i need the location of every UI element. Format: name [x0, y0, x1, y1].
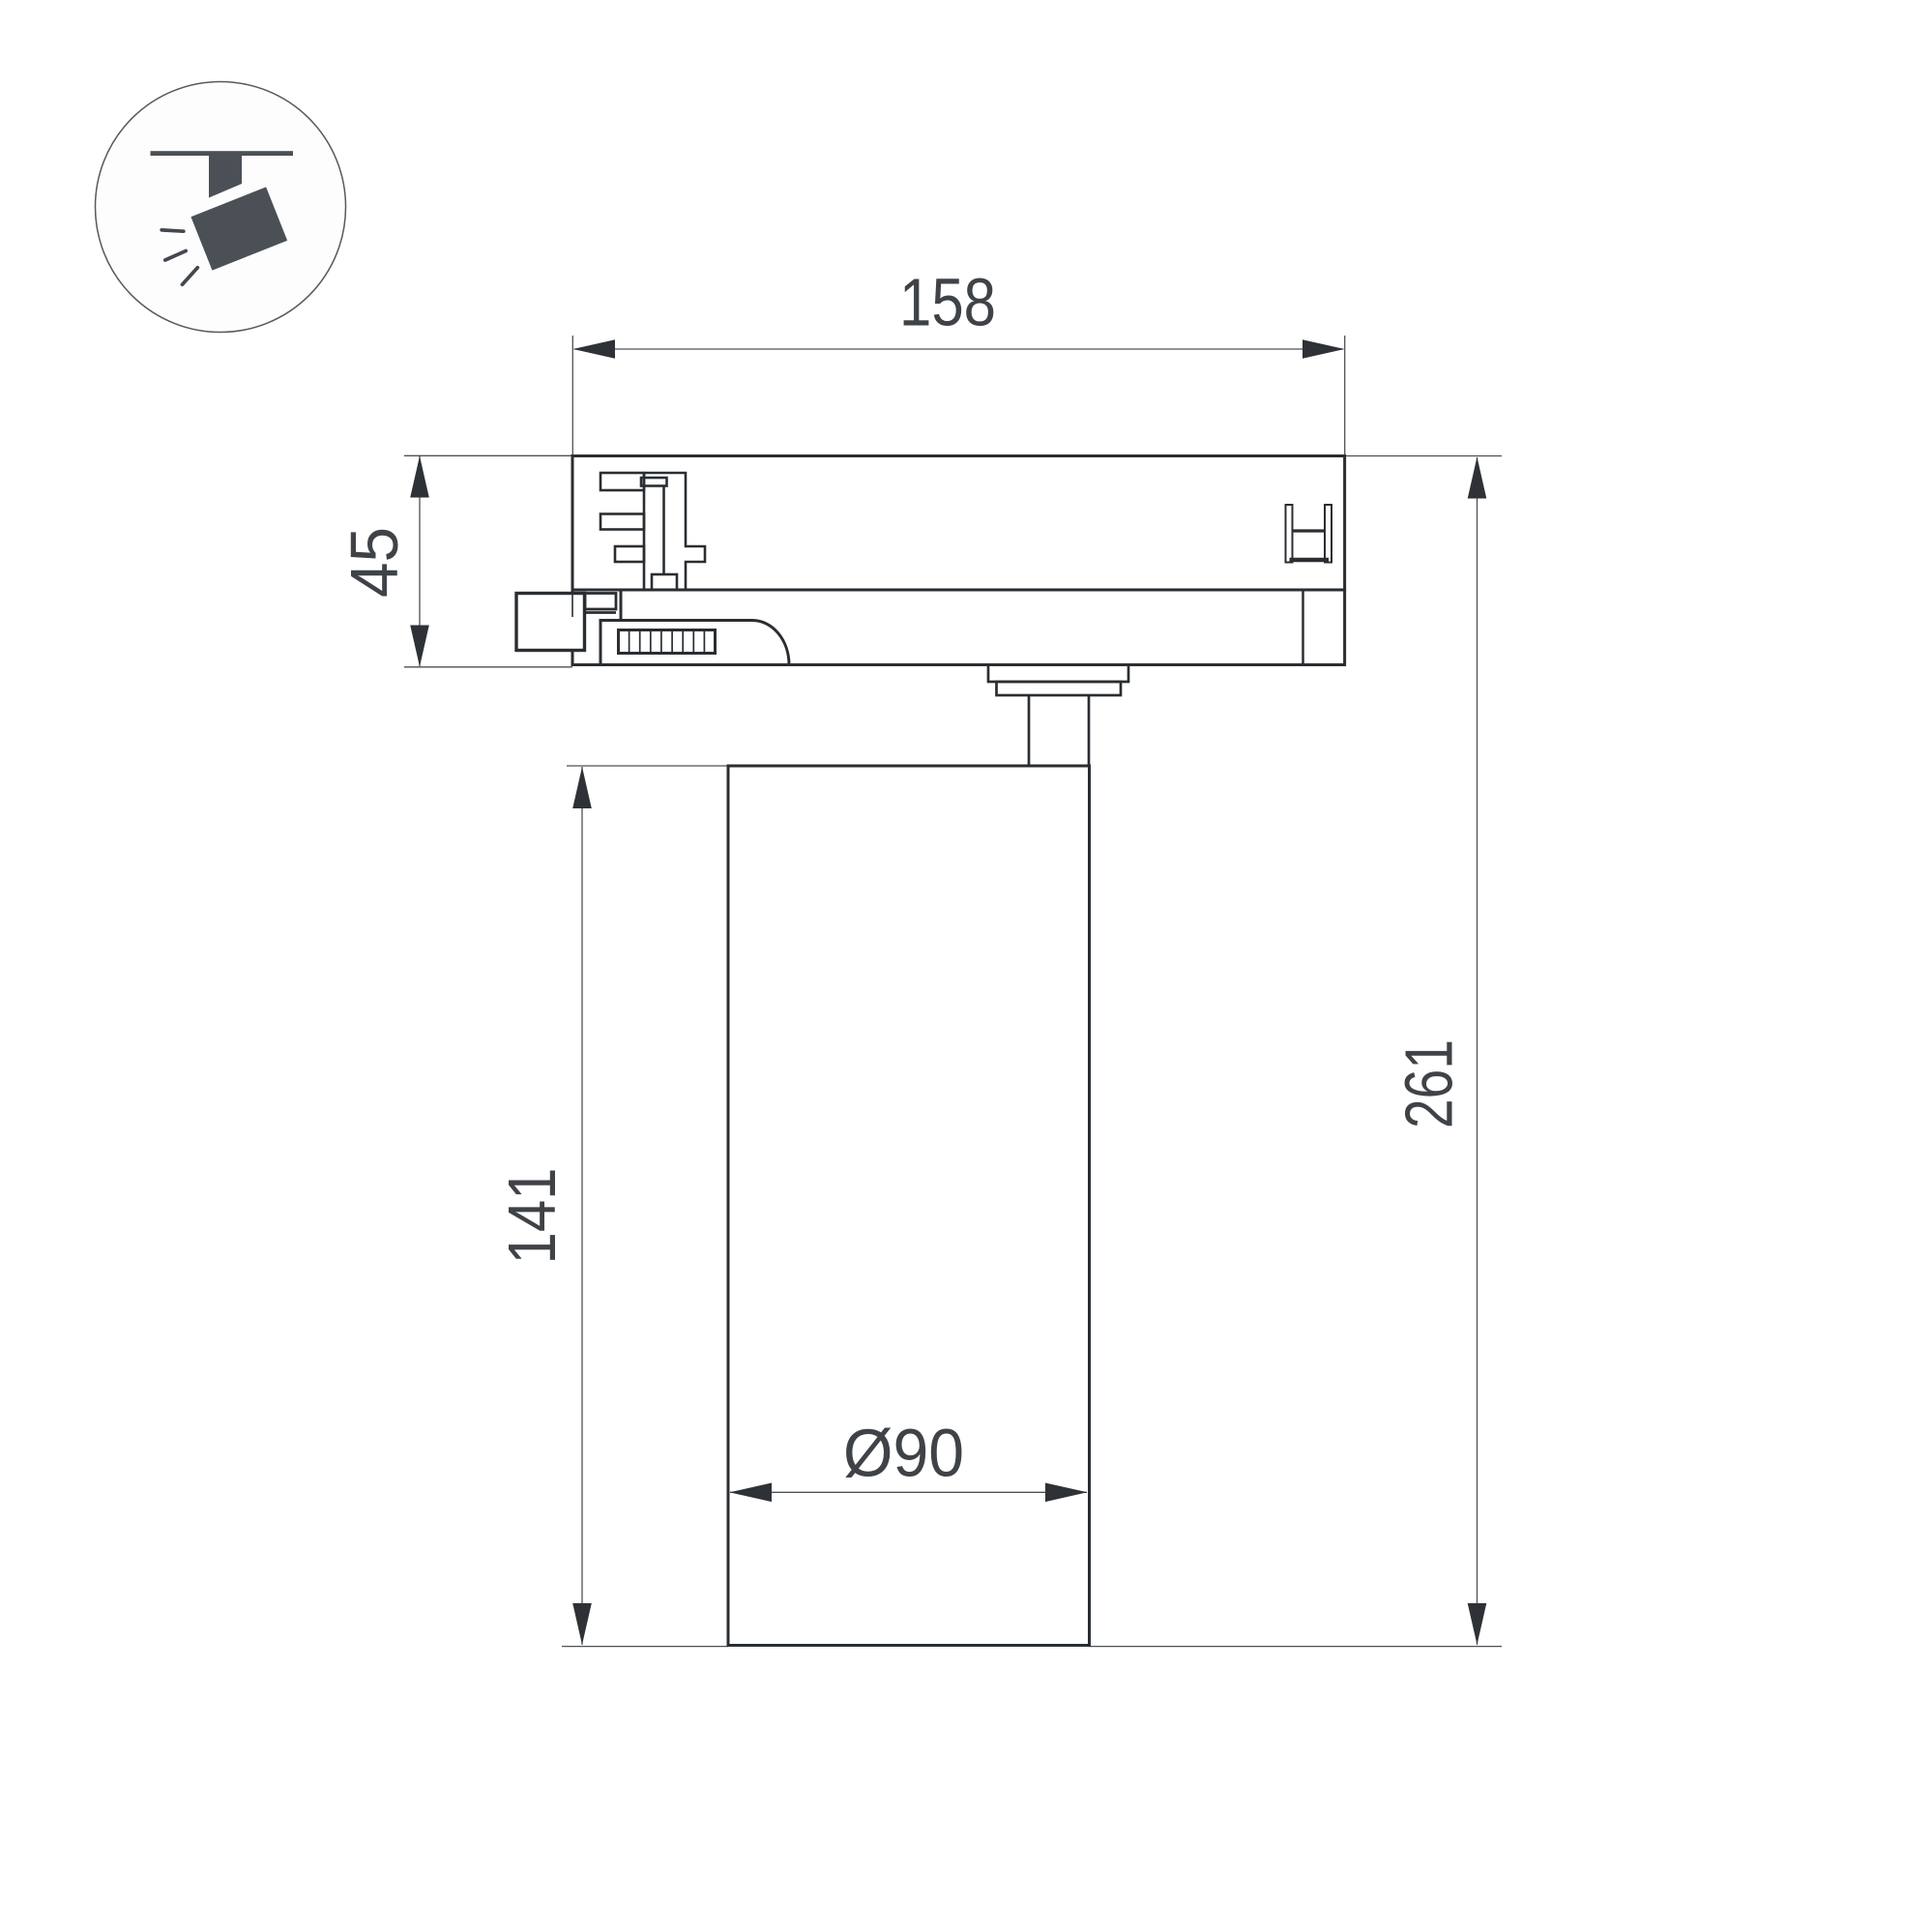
svg-text:141: 141	[494, 1168, 570, 1265]
svg-text:Ø90: Ø90	[843, 1416, 964, 1491]
svg-text:45: 45	[337, 527, 412, 598]
svg-text:261: 261	[1391, 1039, 1467, 1128]
svg-text:158: 158	[899, 265, 996, 340]
